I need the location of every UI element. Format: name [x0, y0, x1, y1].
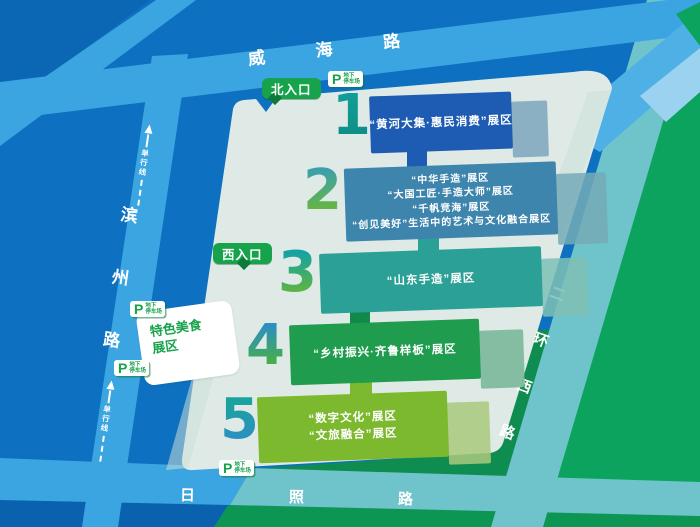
arrow-line [145, 134, 149, 147]
arrow-dashed-line [99, 435, 105, 461]
arrow-line [107, 390, 111, 403]
parking-p-icon: P [134, 302, 143, 316]
parking-marker: P 地下 停车场 [114, 360, 149, 376]
entrance-badge-north: 北入口 [262, 78, 321, 99]
parking-label-line2: 停车场 [145, 309, 162, 315]
arrow-head-icon [144, 124, 153, 134]
entrance-west-label: 西入口 [222, 244, 263, 263]
entrance-badge-west: 西入口 [213, 243, 272, 264]
arrow-dashed-line [137, 179, 143, 205]
parking-label: 地下 停车场 [234, 462, 251, 474]
parking-label-line2: 停车场 [343, 79, 360, 85]
parking-label-line2: 停车场 [129, 368, 146, 374]
map-stage: 威海路 滨州路 二环西路 日照路 单行线 单行线 北入口 西入口 特色美食 展区… [0, 0, 700, 527]
parking-p-icon: P [118, 361, 127, 375]
entrance-north-label: 北入口 [271, 79, 312, 98]
parking-label: 地下 停车场 [129, 362, 146, 374]
parking-label: 地下 停车场 [343, 73, 360, 85]
parking-label-line2: 停车场 [234, 468, 251, 474]
parking-marker: P 地下 停车场 [328, 71, 363, 87]
parking-marker: P 地下 停车场 [130, 301, 165, 317]
arrow-head-icon [106, 380, 115, 390]
parking-marker: P 地下 停车场 [219, 460, 254, 476]
parking-label: 地下 停车场 [145, 303, 162, 315]
parking-p-icon: P [332, 72, 341, 86]
parking-p-icon: P [223, 461, 232, 475]
